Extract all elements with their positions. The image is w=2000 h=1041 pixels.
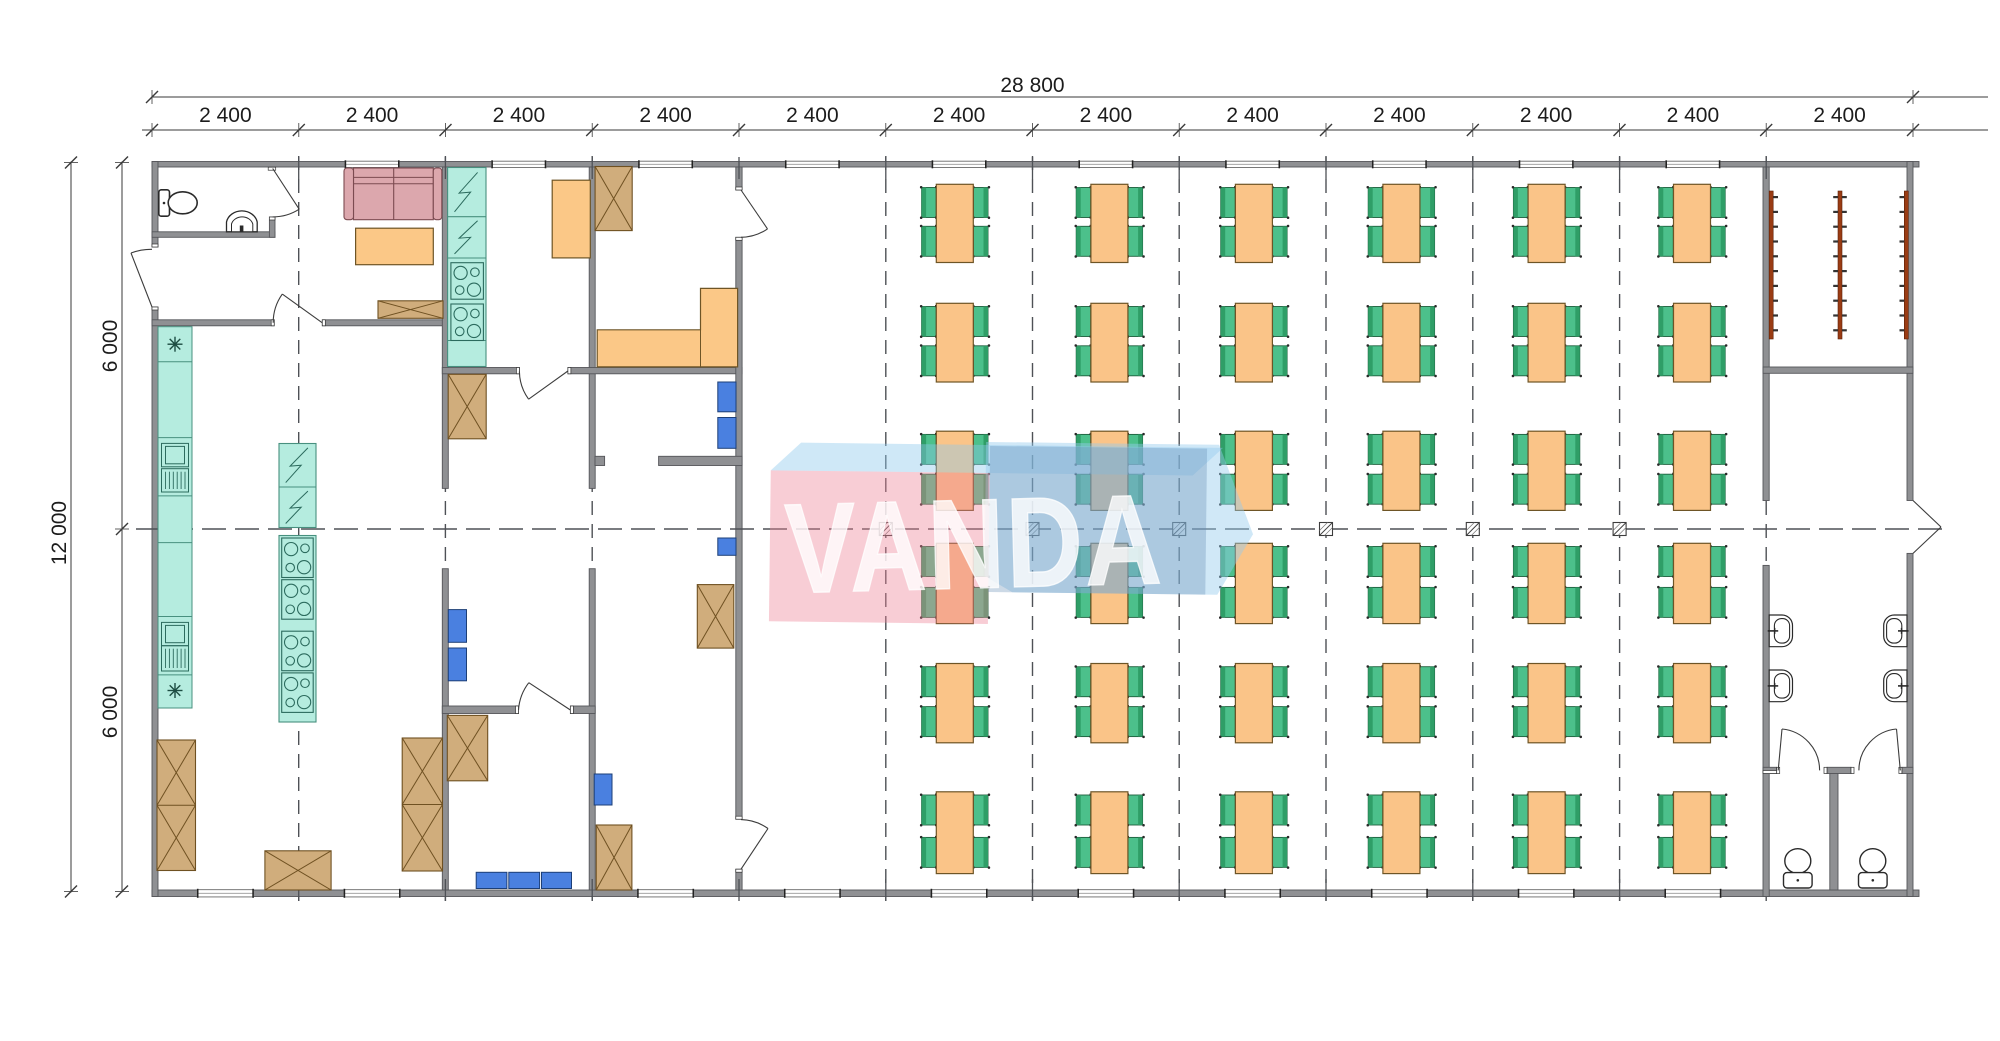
svg-text:12 000: 12 000: [48, 501, 71, 565]
svg-text:2 400: 2 400: [1080, 104, 1133, 127]
svg-text:2 400: 2 400: [493, 104, 546, 127]
svg-text:6 000: 6 000: [99, 320, 122, 373]
svg-text:2 400: 2 400: [786, 104, 839, 127]
svg-text:6 000: 6 000: [99, 686, 122, 739]
svg-text:VANDA: VANDA: [783, 468, 1165, 621]
svg-text:2 400: 2 400: [639, 104, 692, 127]
svg-text:2 400: 2 400: [1813, 104, 1866, 127]
svg-text:2 400: 2 400: [346, 104, 399, 127]
svg-text:2 400: 2 400: [1373, 104, 1426, 127]
svg-text:2 400: 2 400: [199, 104, 252, 127]
svg-text:2 400: 2 400: [1520, 104, 1573, 127]
svg-text:2 400: 2 400: [933, 104, 986, 127]
svg-text:28 800: 28 800: [1000, 74, 1064, 97]
svg-text:2 400: 2 400: [1667, 104, 1720, 127]
svg-text:2 400: 2 400: [1226, 104, 1279, 127]
